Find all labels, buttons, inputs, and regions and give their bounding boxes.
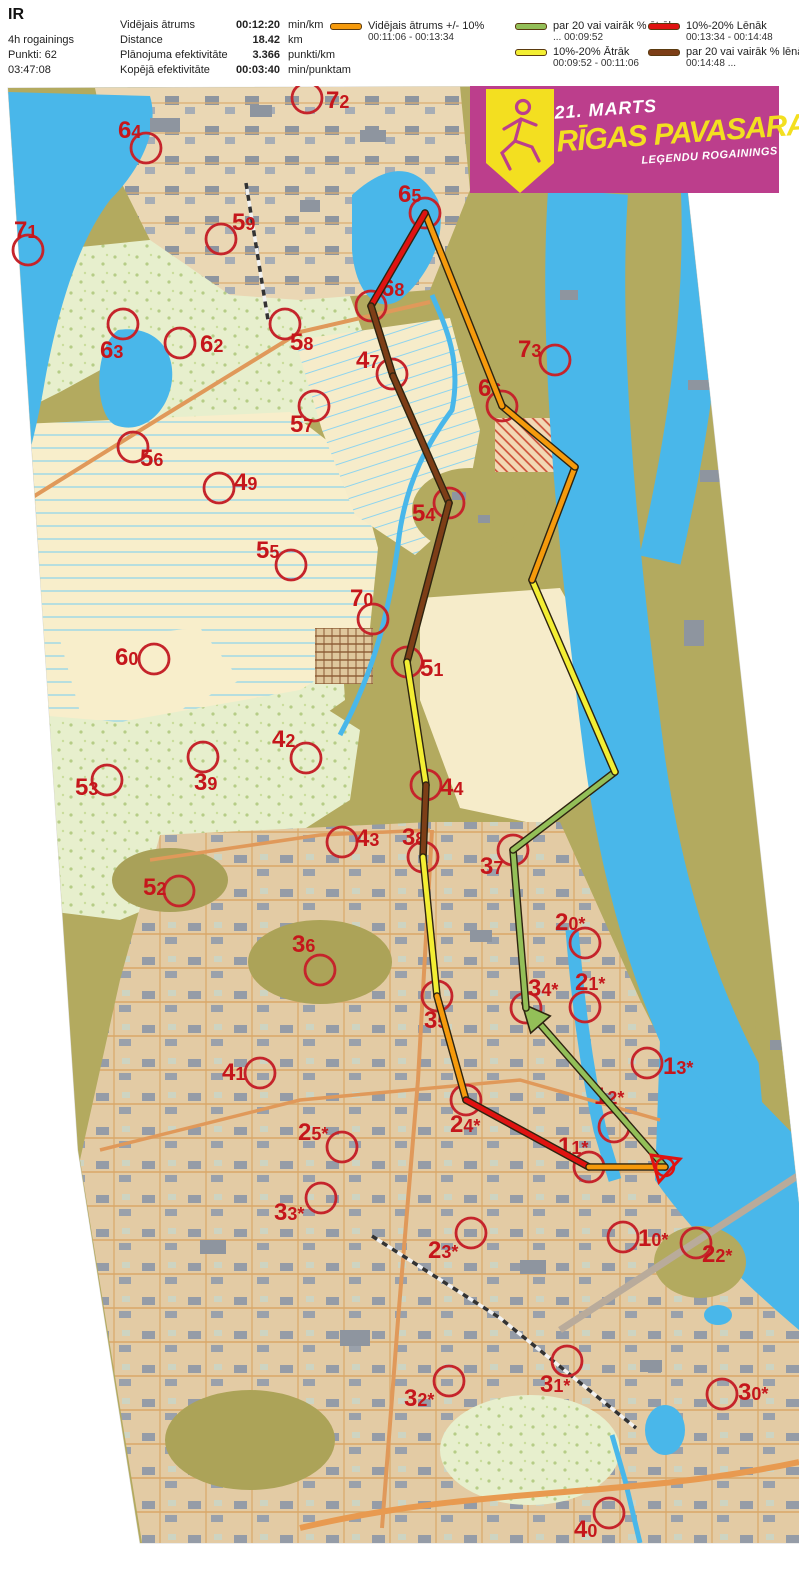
svg-text:39: 39: [194, 769, 217, 796]
svg-text:42: 42: [272, 726, 295, 753]
legend-label: Vidējais ātrums +/- 10%: [368, 20, 484, 32]
legend-label: 10%-20% Ātrāk: [553, 46, 629, 58]
legend-item: par 20 vai vairāk % lēnāk00:14:48 ...: [648, 46, 798, 69]
page-title: IR: [8, 6, 24, 24]
legend-item: Vidējais ātrums +/- 10%00:11:06 - 00:13:…: [330, 20, 510, 43]
legend-column-slower: 10%-20% Lēnāk00:13:34 - 00:14:48par 20 v…: [648, 20, 798, 72]
summary-line-0: 4h rogainings: [8, 33, 74, 48]
svg-text:56: 56: [140, 445, 163, 472]
svg-text:13*: 13*: [663, 1053, 693, 1080]
rogaining-map: 7264715963625865684773665756495455705160…: [0, 0, 799, 1590]
svg-text:33*: 33*: [274, 1199, 304, 1226]
legend-swatch-fast: [515, 49, 547, 56]
svg-text:53: 53: [75, 774, 98, 801]
svg-text:62: 62: [200, 331, 223, 358]
svg-text:49: 49: [234, 469, 257, 496]
legend-swatch-faster: [515, 23, 547, 30]
svg-text:59: 59: [232, 209, 255, 236]
svg-text:51: 51: [420, 655, 443, 682]
svg-text:64: 64: [118, 117, 141, 144]
svg-text:47: 47: [356, 347, 379, 374]
map-background: [0, 80, 799, 1550]
svg-text:60: 60: [115, 644, 138, 671]
svg-text:23*: 23*: [428, 1237, 458, 1264]
svg-text:44: 44: [440, 774, 463, 801]
svg-text:72: 72: [326, 87, 349, 114]
route-leg-12-slower: [423, 785, 426, 857]
svg-text:52: 52: [143, 874, 166, 901]
header: IR 4h rogainingsPunkti: 6203:47:08 Vidēj…: [0, 0, 799, 86]
svg-text:34*: 34*: [528, 975, 558, 1002]
svg-text:21*: 21*: [575, 969, 605, 996]
svg-text:32*: 32*: [404, 1385, 434, 1412]
banner-text: 21. MARTS RĪGAS PAVASARA LEĢENDU ROGAINI…: [554, 87, 778, 172]
legend-range: 00:13:34 - 00:14:48: [686, 32, 798, 43]
svg-text:63: 63: [100, 337, 123, 364]
svg-text:20*: 20*: [555, 909, 585, 936]
svg-text:54: 54: [412, 500, 435, 527]
svg-text:73: 73: [518, 336, 541, 363]
legend-swatch-slower: [648, 49, 680, 56]
svg-text:57: 57: [290, 411, 313, 438]
stat-row: Kopējā efektivitāte00:03:40min/punktam: [120, 63, 380, 78]
svg-text:36: 36: [292, 931, 315, 958]
legend-swatch-slow: [648, 23, 680, 30]
svg-text:31*: 31*: [540, 1371, 570, 1398]
svg-text:37: 37: [480, 853, 503, 880]
svg-text:10*: 10*: [638, 1225, 668, 1252]
event-logo-shield: [484, 87, 556, 197]
legend-label: 10%-20% Lēnāk: [686, 20, 767, 32]
svg-text:58: 58: [290, 329, 313, 356]
svg-text:65: 65: [398, 181, 421, 208]
svg-text:22*: 22*: [702, 1241, 732, 1268]
stat-row: Plānojuma efektivitāte3.366punkti/km: [120, 48, 380, 63]
summary-line-2: 03:47:08: [8, 63, 74, 78]
legend-swatch-avg: [330, 23, 362, 30]
legend-range: 00:14:48 ...: [686, 58, 798, 69]
svg-text:43: 43: [356, 825, 379, 852]
summary-line-1: Punkti: 62: [8, 48, 74, 63]
svg-text:55: 55: [256, 537, 279, 564]
svg-text:25*: 25*: [298, 1119, 328, 1146]
legend-label: par 20 vai vairāk % lēnāk: [686, 46, 799, 58]
svg-text:70: 70: [350, 585, 373, 612]
event-banner: 21. MARTS RĪGAS PAVASARA LEĢENDU ROGAINI…: [470, 85, 779, 193]
svg-text:41: 41: [222, 1059, 245, 1086]
legend-item: 10%-20% Lēnāk00:13:34 - 00:14:48: [648, 20, 798, 43]
svg-text:24*: 24*: [450, 1111, 480, 1138]
results-page: 7264715963625865684773665756495455705160…: [0, 0, 799, 1590]
svg-text:30*: 30*: [738, 1379, 768, 1406]
runner-summary: 4h rogainingsPunkti: 6203:47:08: [8, 33, 74, 78]
legend-column-average: Vidējais ātrums +/- 10%00:11:06 - 00:13:…: [330, 20, 510, 46]
svg-text:71: 71: [14, 217, 37, 244]
svg-text:40: 40: [574, 1516, 597, 1543]
legend-range: 00:11:06 - 00:13:34: [368, 32, 510, 43]
